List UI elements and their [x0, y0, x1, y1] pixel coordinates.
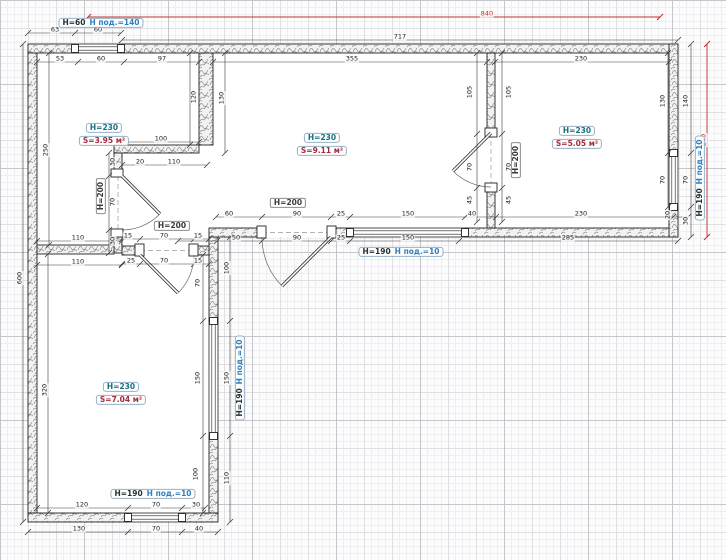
building-footprint: [28, 44, 678, 522]
drawing-canvas: 8402407176360536097355230100201101201302…: [0, 0, 726, 560]
floorplan-drawing: [0, 0, 726, 560]
